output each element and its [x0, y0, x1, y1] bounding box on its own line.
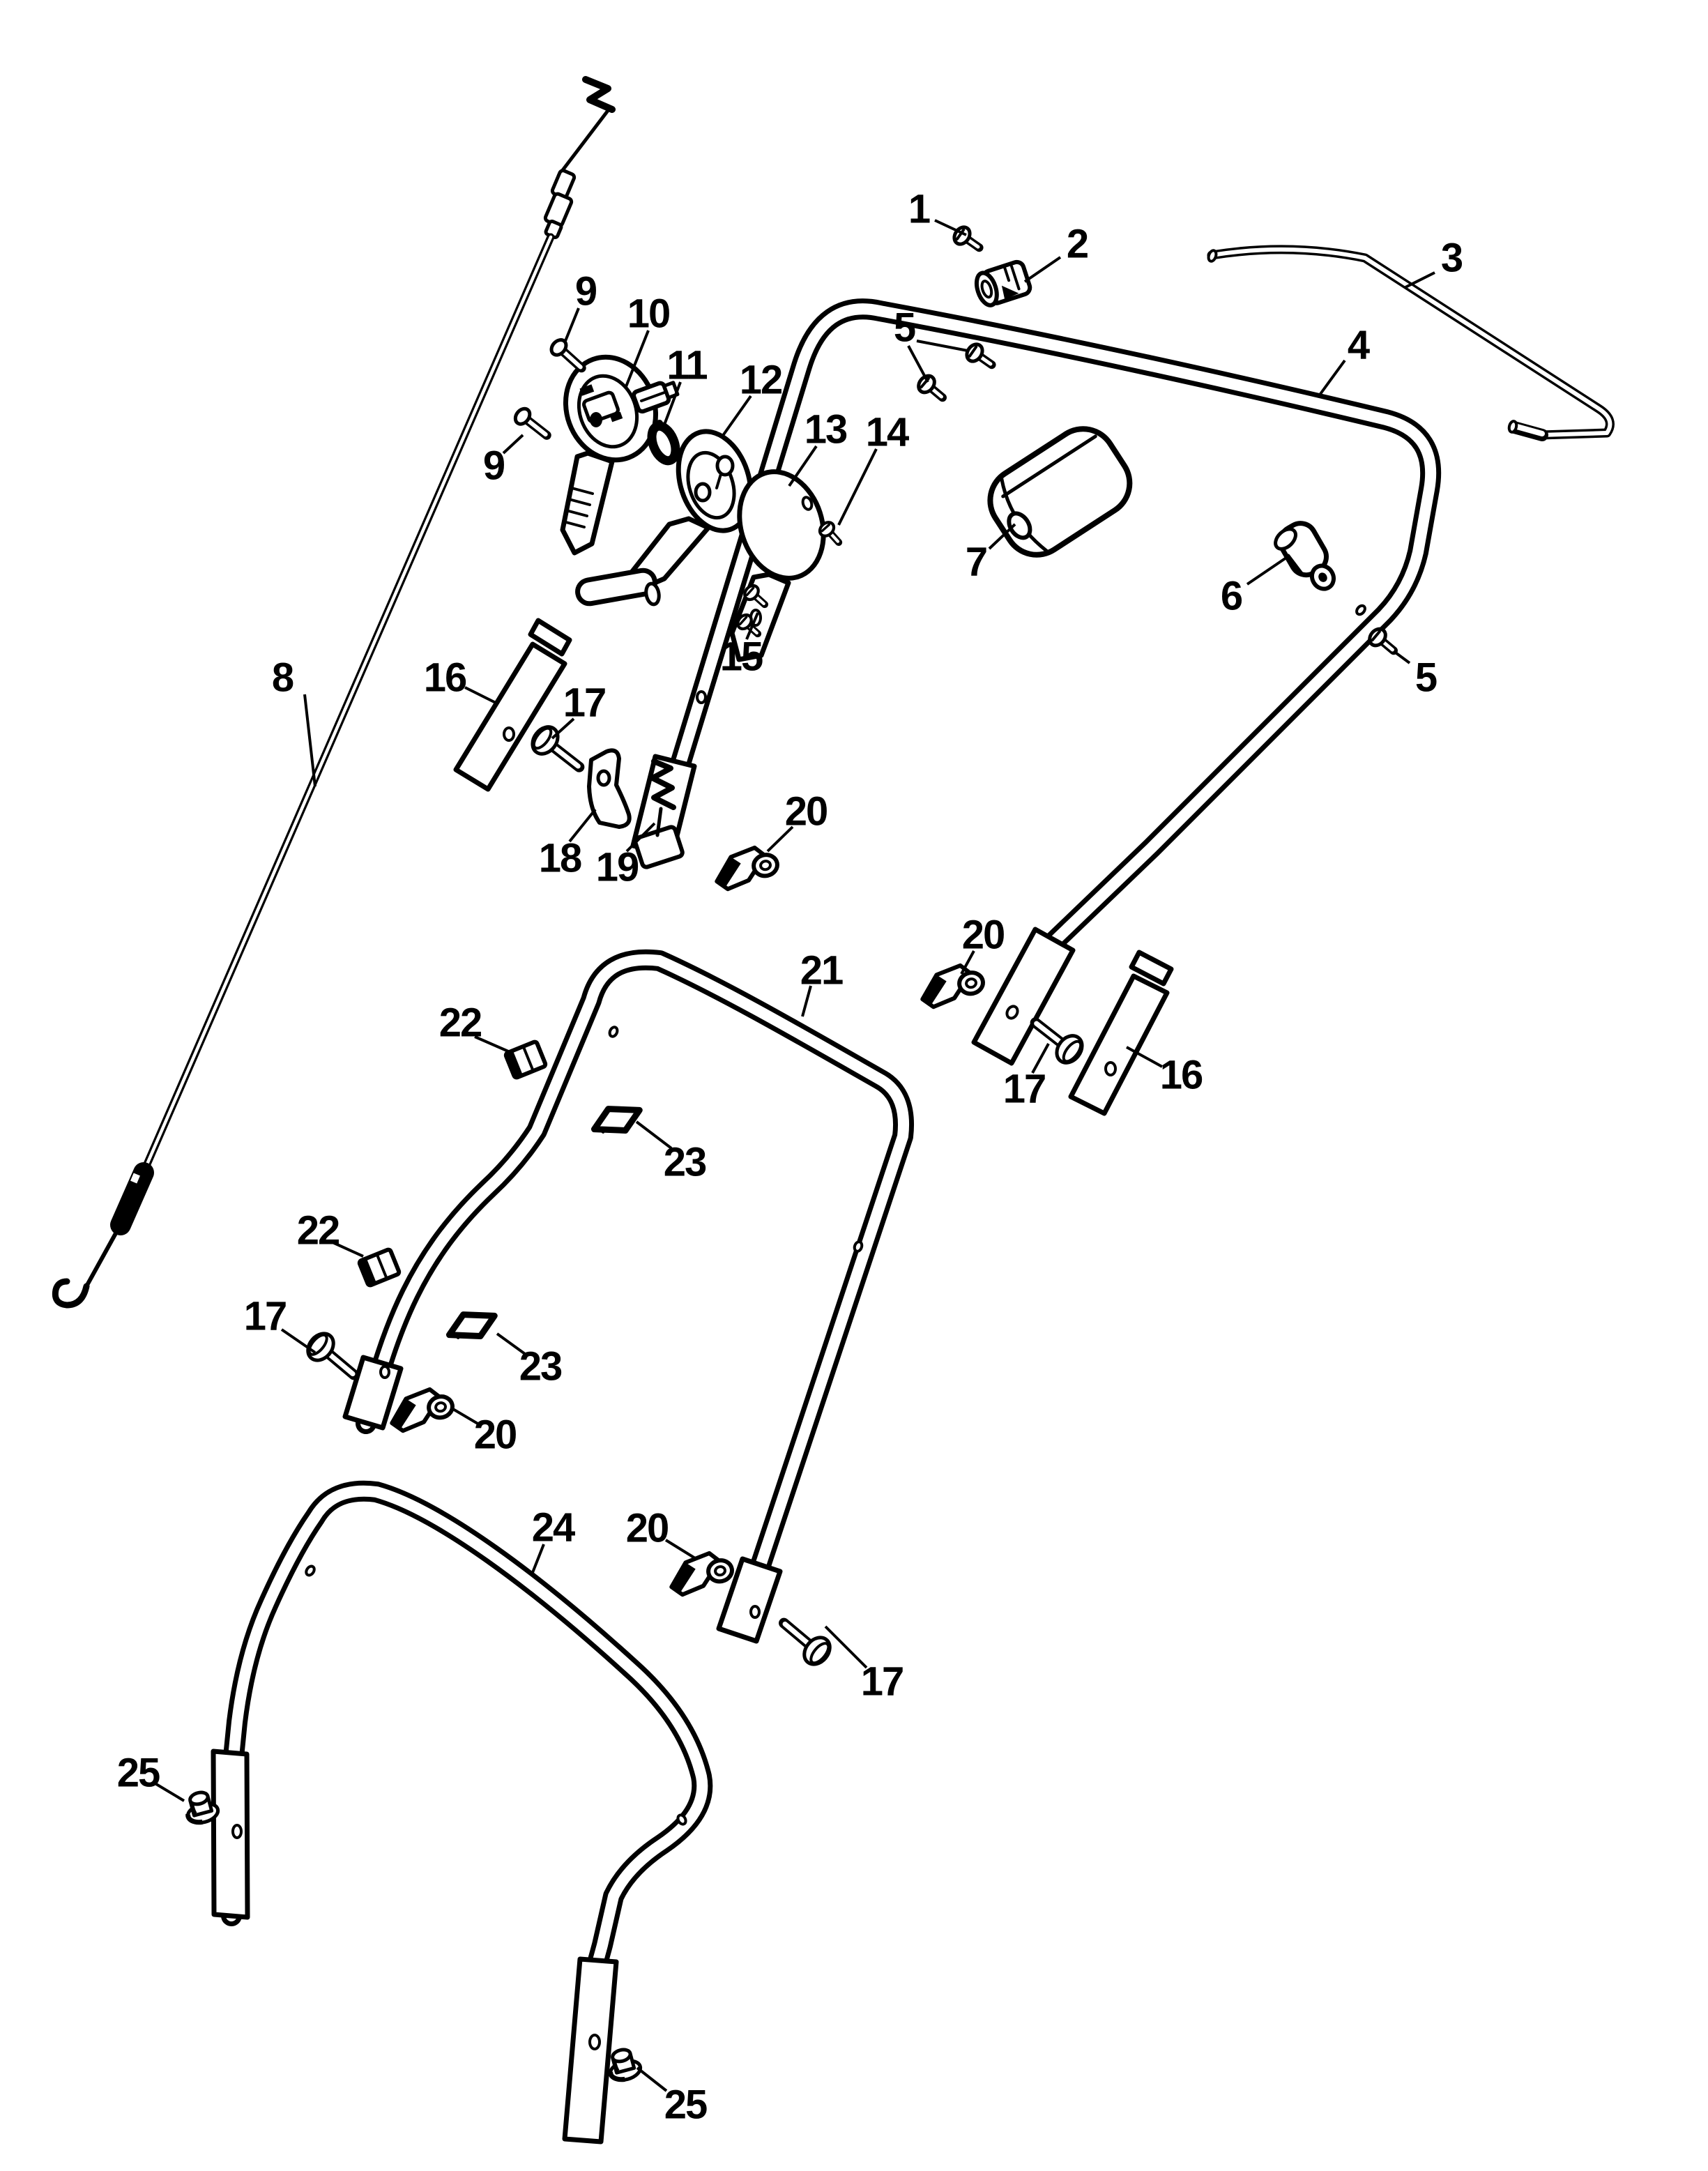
callout-leader-line	[908, 346, 928, 382]
cable-inner-wire-top	[558, 109, 609, 176]
screw	[915, 373, 948, 405]
callout-leader-line	[917, 341, 968, 351]
part-number-label: 25	[117, 1751, 160, 1796]
part-number-label: 16	[1160, 1053, 1203, 1098]
lower-handle	[213, 1491, 702, 2142]
square-clip	[505, 1041, 547, 1078]
rod-open-end	[1207, 250, 1218, 262]
tube-hole	[381, 1366, 389, 1378]
callout-leader-line	[637, 2068, 666, 2091]
part-number-label: 20	[626, 1506, 669, 1551]
exploded-parts-diagram: 1234556789910111213141516161717171718192…	[0, 0, 1708, 2171]
tube-hole	[590, 2035, 600, 2049]
cable-clamp	[1269, 516, 1342, 601]
t-grip	[576, 569, 657, 606]
part-number-label: 19	[596, 845, 639, 890]
part-number-label: 7	[966, 540, 986, 585]
cam-lock-lever	[387, 1385, 455, 1433]
part-number-label: 4	[1348, 323, 1370, 368]
square-clip	[359, 1249, 400, 1286]
part-number-label: 14	[866, 410, 909, 455]
part-number-label: 23	[519, 1344, 562, 1389]
middle-handle	[345, 960, 903, 1641]
lower-handle-left-flat-tip	[213, 1751, 247, 1917]
carriage-bolt	[527, 722, 588, 779]
carriage-bolts	[303, 722, 1087, 1670]
part-number-label: 13	[805, 407, 847, 452]
cable-inner-wire-bottom	[86, 1227, 119, 1286]
part-number-label: 18	[539, 836, 581, 881]
pivot-pin	[512, 406, 552, 442]
rivet-bump	[1355, 604, 1367, 616]
part-number-label: 10	[627, 291, 670, 337]
callout-leader-line	[666, 1540, 695, 1558]
cable-guide-bracket	[589, 750, 630, 827]
cable-adjuster-ferrule	[544, 169, 575, 238]
wedge-clip	[447, 1310, 497, 1340]
throttle-lever	[551, 344, 679, 553]
tube-hole	[697, 692, 706, 703]
callout-leader-line	[305, 694, 315, 786]
part-number-label: 22	[297, 1208, 340, 1254]
part-number-label: 20	[474, 1412, 517, 1458]
screw	[963, 342, 997, 372]
part-number-label: 8	[272, 655, 293, 701]
carriage-bolt	[303, 1329, 363, 1386]
cam-lock-levers	[387, 844, 986, 1597]
tube-hole	[233, 1825, 241, 1838]
part-number-label: 17	[1003, 1067, 1046, 1112]
callout-leader-line	[1394, 651, 1410, 663]
wedge-clips	[447, 1104, 642, 1340]
cable-end-fitting	[973, 260, 1032, 307]
upper-handle	[633, 309, 1431, 1063]
callout-leader-line	[1247, 558, 1286, 584]
part-number-label: 12	[740, 358, 782, 403]
part-number-label: 20	[785, 789, 828, 835]
part-number-label: 9	[575, 269, 597, 314]
carriage-bolt	[775, 1612, 835, 1669]
part-number-label: 17	[244, 1294, 287, 1339]
carriage-bolt	[1026, 1011, 1087, 1067]
part-number-label: 5	[1415, 655, 1437, 701]
mounting-plate-left	[456, 620, 570, 789]
callout-leader-line	[789, 446, 816, 486]
cam-lock-lever	[666, 1549, 735, 1597]
bail-control-rod	[1207, 250, 1610, 435]
part-number-label: 1	[908, 187, 930, 232]
part-number-label: 22	[439, 1000, 482, 1046]
cam-lock-lever	[917, 961, 986, 1009]
rivet-bump	[609, 1026, 619, 1038]
part-number-label: 11	[666, 343, 707, 388]
parts-diagram-page: 1234556789910111213141516161717171718192…	[0, 0, 1708, 2171]
callout-leader-line	[1025, 257, 1060, 282]
part-number-label: 21	[800, 948, 843, 993]
callout-leader-line	[839, 449, 876, 525]
part-number-label: 5	[894, 305, 915, 351]
wedge-clip	[592, 1104, 642, 1134]
part-number-label: 25	[664, 2082, 707, 2128]
tube-hole	[751, 1606, 759, 1617]
part-number-label: 2	[1067, 222, 1088, 267]
part-number-label: 20	[962, 913, 1005, 958]
part-number-label: 17	[861, 1659, 903, 1705]
part-number-label: 23	[664, 1140, 706, 1185]
cable-hook-end	[55, 1281, 86, 1305]
grommet	[647, 420, 680, 464]
callout-leader-line	[1405, 273, 1435, 287]
callout-leader-line	[465, 687, 496, 703]
lower-handle-right-flat-tip	[565, 1959, 616, 2142]
cam-lock-lever	[712, 844, 780, 891]
part-number-label: 6	[1221, 574, 1242, 619]
part-number-label: 9	[483, 443, 505, 489]
cable-z-fitting	[586, 79, 612, 109]
callout-leader-line	[503, 435, 523, 453]
callout-leader-line	[1320, 360, 1345, 394]
part-number-label: 17	[563, 680, 606, 726]
part-number-label: 3	[1441, 236, 1463, 281]
mounting-plate-right	[1071, 952, 1171, 1113]
part-number-label: 15	[720, 634, 763, 680]
rivet-bump	[305, 1564, 316, 1576]
part-number-label: 24	[532, 1505, 575, 1551]
part-number-label: 16	[424, 655, 466, 701]
foam-grip-block	[978, 417, 1142, 567]
callout-leader-line	[156, 1784, 184, 1801]
pivot-pin	[549, 337, 587, 374]
